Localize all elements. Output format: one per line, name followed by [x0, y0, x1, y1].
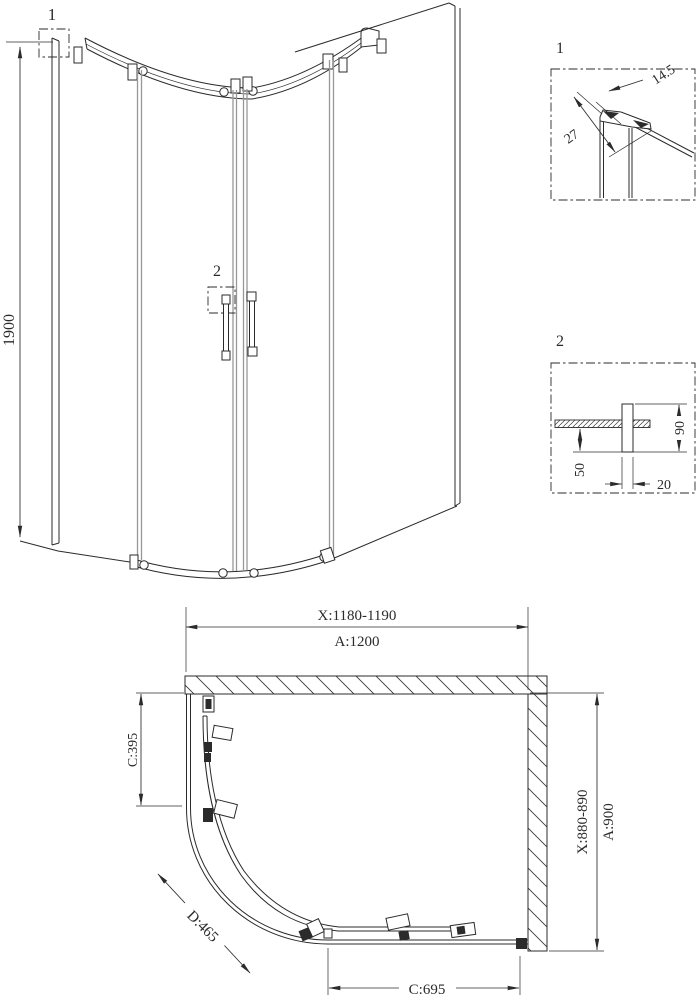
handle-cap: [222, 295, 230, 304]
dim-line-14-5: [609, 80, 643, 91]
right-side-panel: [295, 3, 460, 559]
handle-bar: [224, 304, 229, 351]
rail-end-bracket: [361, 28, 379, 47]
dim-90-label: 90: [673, 421, 688, 435]
door-bracket: [214, 800, 238, 819]
detail-view-2: 2 90 50 20: [551, 333, 695, 493]
dim-left-panel-label: C:395: [126, 733, 141, 767]
bottom-rail: [58, 547, 335, 578]
dim-line-27: [574, 97, 615, 152]
dim-14-5-label: 14.5: [649, 62, 678, 88]
wall-bracket: [339, 58, 347, 72]
panel-end-bracket: [516, 938, 527, 949]
dim-top-overall-label: A:1200: [335, 634, 380, 650]
dim-bottom-panel-label: C:695: [409, 982, 446, 998]
rail-bracket: [128, 64, 137, 80]
top-rail: [74, 28, 386, 99]
handle-cap: [248, 347, 257, 356]
dim-27-label: 27: [562, 127, 582, 147]
curved-door-outer: [203, 716, 468, 931]
door-bracket: [324, 929, 332, 938]
plan-enclosure: [187, 694, 529, 949]
left-wall-profile: [20, 38, 59, 551]
wall-bracket: [74, 47, 82, 63]
dim-right-overall-label: A:900: [601, 803, 617, 841]
callout-2-label: 2: [213, 263, 221, 280]
detail-1-label: 1: [556, 40, 564, 57]
technical-drawing-page: 1900 1: [0, 0, 696, 1000]
dim-20-label: 20: [657, 478, 671, 493]
roller-wheel: [140, 561, 148, 569]
rail-bracket: [130, 555, 138, 569]
roller-wheel: [139, 67, 147, 75]
elevation-view: 1900 1: [1, 3, 460, 578]
roller-wheel: [219, 569, 227, 577]
door-bracket: [212, 725, 233, 740]
glass-section-bar: [555, 420, 650, 428]
handle-cap: [222, 351, 230, 360]
shower-enclosure-drawing: 1900 1: [0, 0, 696, 1000]
handle-cap: [247, 292, 256, 301]
rail-bracket: [243, 77, 252, 91]
dim-height-label: 1900: [1, 314, 18, 346]
right-wall: [528, 694, 547, 951]
roller-wheel: [220, 88, 228, 96]
detail-2-label: 2: [556, 333, 564, 350]
dim-50-label: 50: [573, 463, 588, 477]
callout-1-label: 1: [48, 5, 57, 24]
dim-right-adjust-label: X:880-890: [575, 790, 591, 855]
glass-door-edges: [138, 60, 334, 571]
wall-bracket: [377, 39, 386, 53]
rail-bracket: [323, 54, 333, 69]
callout-1-box: [39, 29, 69, 57]
top-wall: [185, 676, 547, 694]
plan-view: X:1180-1190 A:1200 C:395 X:880-890 A:900…: [126, 607, 617, 998]
door-bracket: [386, 914, 410, 930]
roller-wheel: [250, 569, 258, 577]
curved-door-inner: [207, 716, 468, 927]
handle-bar: [250, 301, 255, 347]
handle-section: [622, 404, 633, 452]
detail-view-1: 1 27 14.5: [551, 40, 695, 200]
dim-top-adjust-label: X:1180-1190: [318, 608, 397, 624]
